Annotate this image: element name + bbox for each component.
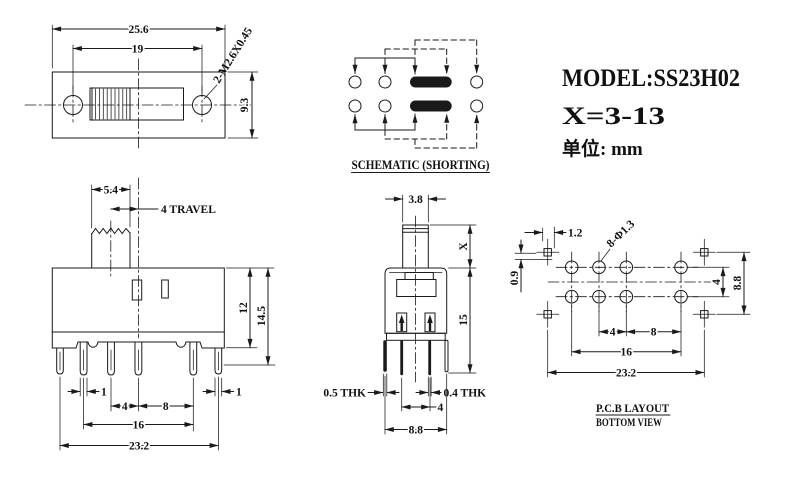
- drawing-sheet: 25.6 19 9.3 2-M2.6X0.45: [0, 0, 800, 480]
- dim-front-height: 9.3: [228, 72, 258, 138]
- dim-text-pcb-overall: 23.2: [616, 368, 636, 380]
- dim-text-pin-width-left: 1: [101, 387, 107, 399]
- dim-text-pad-offset-y: 0.9: [509, 271, 521, 286]
- dim-text-knob-width: 5.4: [104, 185, 119, 197]
- technical-drawing: 25.6 19 9.3 2-M2.6X0.45: [0, 0, 800, 480]
- thread-callout: 2-M2.6X0.45: [204, 25, 255, 99]
- dim-text-stem-height: X: [458, 242, 470, 251]
- callout-text-thk-left: 0.5 THK: [323, 388, 366, 400]
- callout-thk-left: 0.5 THK: [323, 374, 399, 400]
- dim-text-pcb-pitch-a: 4: [610, 327, 616, 339]
- dim-text-pcb-span: 16: [621, 347, 633, 359]
- schematic-wiring-top: [355, 40, 477, 74]
- dim-text-front-width: 25.6: [129, 24, 149, 36]
- dim-pin-width-left: 1: [68, 378, 107, 399]
- contact-right: [425, 313, 435, 332]
- terminal-circle: [379, 76, 391, 88]
- body-detail-window: [132, 280, 141, 300]
- dim-text-travel: 4 TRAVEL: [161, 204, 216, 216]
- dim-pin-pitch-chain: 4 8: [111, 378, 193, 431]
- dim-text-pad-offset-x: 1.2: [568, 228, 583, 240]
- pcb-caption-line1: P.C.B LAYOUT: [596, 403, 669, 415]
- contact-left: [397, 313, 407, 332]
- profile-view: 3.8 X 15 0.5 THK 0.4 THK: [323, 194, 486, 437]
- dim-pcb-pitch-chain: 4 8: [599, 304, 681, 356]
- schematic-caption: SCHEMATIC (SHORTING): [352, 158, 490, 172]
- model-number: MODEL:SS23H02: [562, 65, 740, 92]
- terminal-circle: [379, 100, 391, 112]
- dim-text-hole-pitch: 19: [132, 44, 144, 56]
- dim-pin-width-right: 1: [203, 378, 242, 399]
- dim-text-overall-width: 23.2: [129, 441, 149, 453]
- dim-text-span: 16: [133, 420, 145, 432]
- callout-thk-right: 0.4 THK: [416, 377, 486, 400]
- dim-text-pin-width-right: 1: [236, 387, 242, 399]
- terminal-circle: [471, 100, 483, 112]
- terminal-circle: [349, 100, 361, 112]
- callout-text-thk-right: 0.4 THK: [444, 388, 487, 400]
- pcb-caption-line2: BOTTOM VIEW: [596, 417, 662, 429]
- side-elevation-view: 5.4 4 TRAVEL 12 14.5 1: [52, 178, 275, 453]
- dim-profile-height: 15: [449, 268, 477, 373]
- mounting-tab-right: [215, 348, 222, 374]
- dim-text-profile-height: 15: [458, 314, 470, 326]
- dim-text-stem-thickness: 3.8: [408, 194, 423, 206]
- dim-pad-offset-x: 1.2: [525, 227, 583, 248]
- shorting-bar-bottom: [410, 101, 452, 112]
- title-block: MODEL:SS23H02 X=3-13 单位: mm: [562, 65, 740, 160]
- mounting-tab-left: [57, 348, 64, 374]
- slider-slot: [90, 88, 184, 120]
- schematic-wiring-bottom: [355, 114, 477, 148]
- callout-hole-spec: 8-Φ1.3: [601, 218, 637, 261]
- dim-text-overall-depth: 8.8: [409, 425, 424, 437]
- terminal-circle: [349, 76, 361, 88]
- x-dimension-range: X=3-13: [562, 103, 665, 130]
- dim-text-row-pitch: 4: [438, 402, 444, 414]
- dim-travel: 4 TRAVEL: [111, 204, 216, 216]
- thread-callout-text: 2-M2.6X0.45: [211, 25, 255, 85]
- dim-text-pcb-pitch-b: 8: [651, 327, 657, 339]
- dim-row-pitch: 4: [402, 378, 444, 414]
- dim-hole-pitch: 19: [73, 44, 202, 93]
- pcb-caption: P.C.B LAYOUT BOTTOM VIEW: [596, 403, 670, 429]
- schematic-diagram: SCHEMATIC (SHORTING): [349, 40, 490, 173]
- dim-text-pitch-a: 4: [122, 401, 128, 413]
- pcb-layout-view: 8-Φ1.3 1.2 0.9 4 8.8: [509, 218, 750, 429]
- profile-notch: [405, 273, 433, 280]
- dim-text-pcb-row-pitch: 4: [711, 279, 723, 285]
- shorting-bar-top: [410, 77, 452, 88]
- dim-text-front-height: 9.3: [239, 98, 251, 113]
- dim-text-body-height: 12: [238, 302, 250, 314]
- body-detail-window: [162, 280, 169, 298]
- dim-stem-height-x: X: [430, 225, 476, 268]
- terminal-circle: [471, 76, 483, 88]
- dim-text-pad-row-span: 8.8: [732, 276, 744, 291]
- front-view: 25.6 19 9.3 2-M2.6X0.45: [25, 24, 258, 151]
- dim-text-pitch-b: 8: [163, 401, 169, 413]
- dim-pad-offset-y: 0.9: [509, 240, 552, 292]
- profile-inner-cavity: [397, 280, 436, 297]
- unit-label: 单位: mm: [562, 137, 643, 160]
- callout-text-hole-spec: 8-Φ1.3: [605, 218, 638, 250]
- dim-text-overall-height: 14.5: [256, 306, 268, 326]
